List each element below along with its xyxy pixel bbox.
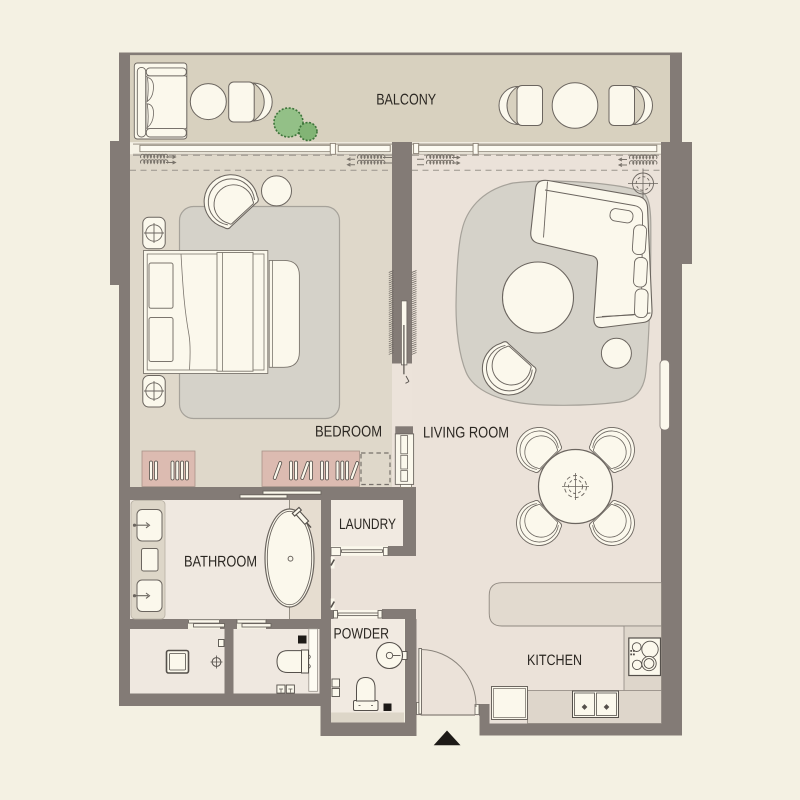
svg-text:LIVING ROOM: LIVING ROOM (423, 424, 509, 441)
svg-text:LAUNDRY: LAUNDRY (339, 516, 396, 533)
svg-text:BATHROOM: BATHROOM (184, 554, 257, 571)
svg-text:POWDER: POWDER (334, 625, 390, 642)
svg-text:KITCHEN: KITCHEN (527, 652, 582, 669)
svg-text:BALCONY: BALCONY (376, 92, 436, 109)
svg-text:BEDROOM: BEDROOM (315, 423, 382, 440)
